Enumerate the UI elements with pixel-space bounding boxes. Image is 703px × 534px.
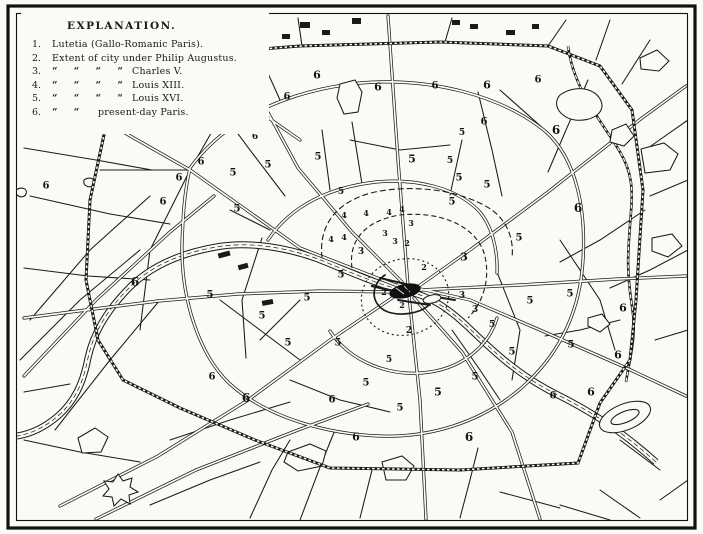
- legend-ditto-marks: “ “ “ “: [52, 65, 132, 79]
- legend-item-text: Louis XIII.: [132, 80, 184, 91]
- legend-item-number: 6.: [21, 106, 52, 120]
- legend-item-text: Charles V.: [132, 66, 182, 77]
- legend-item-number: 1.: [21, 38, 52, 52]
- paris-growth-map: EXPLANATION. 1.Lutetia (Gallo-Romanic Pa…: [0, 0, 703, 534]
- legend-item-text: present-day Paris.: [98, 107, 189, 118]
- legend-item: 1.Lutetia (Gallo-Romanic Paris).: [21, 38, 269, 52]
- legend-item: 3.“ “ “ “Charles V.: [21, 65, 269, 79]
- legend-item-text: Lutetia (Gallo-Romanic Paris).: [52, 39, 203, 50]
- legend-ditto-marks: “ “: [52, 106, 98, 120]
- legend-item-number: 4.: [21, 79, 52, 93]
- legend-item-text: Extent of city under Philip Augustus.: [52, 53, 237, 64]
- legend-item-number: 3.: [21, 65, 52, 79]
- legend-item-number: 2.: [21, 52, 52, 66]
- map-legend: EXPLANATION. 1.Lutetia (Gallo-Romanic Pa…: [21, 12, 269, 134]
- legend-ditto-marks: “ “ “ “: [52, 92, 132, 106]
- boundary-louis-xiii: [322, 189, 513, 258]
- legend-title: EXPLANATION.: [67, 20, 269, 32]
- legend-item: 2.Extent of city under Philip Augustus.: [21, 52, 269, 66]
- legend-item: 4.“ “ “ “Louis XIII.: [21, 79, 269, 93]
- legend-item-number: 5.: [21, 92, 52, 106]
- legend-item: 5.“ “ “ “Louis XVI.: [21, 92, 269, 106]
- legend-item-text: Louis XVI.: [132, 93, 183, 104]
- legend-ditto-marks: “ “ “ “: [52, 79, 132, 93]
- legend-item: 6.“ “present-day Paris.: [21, 106, 269, 120]
